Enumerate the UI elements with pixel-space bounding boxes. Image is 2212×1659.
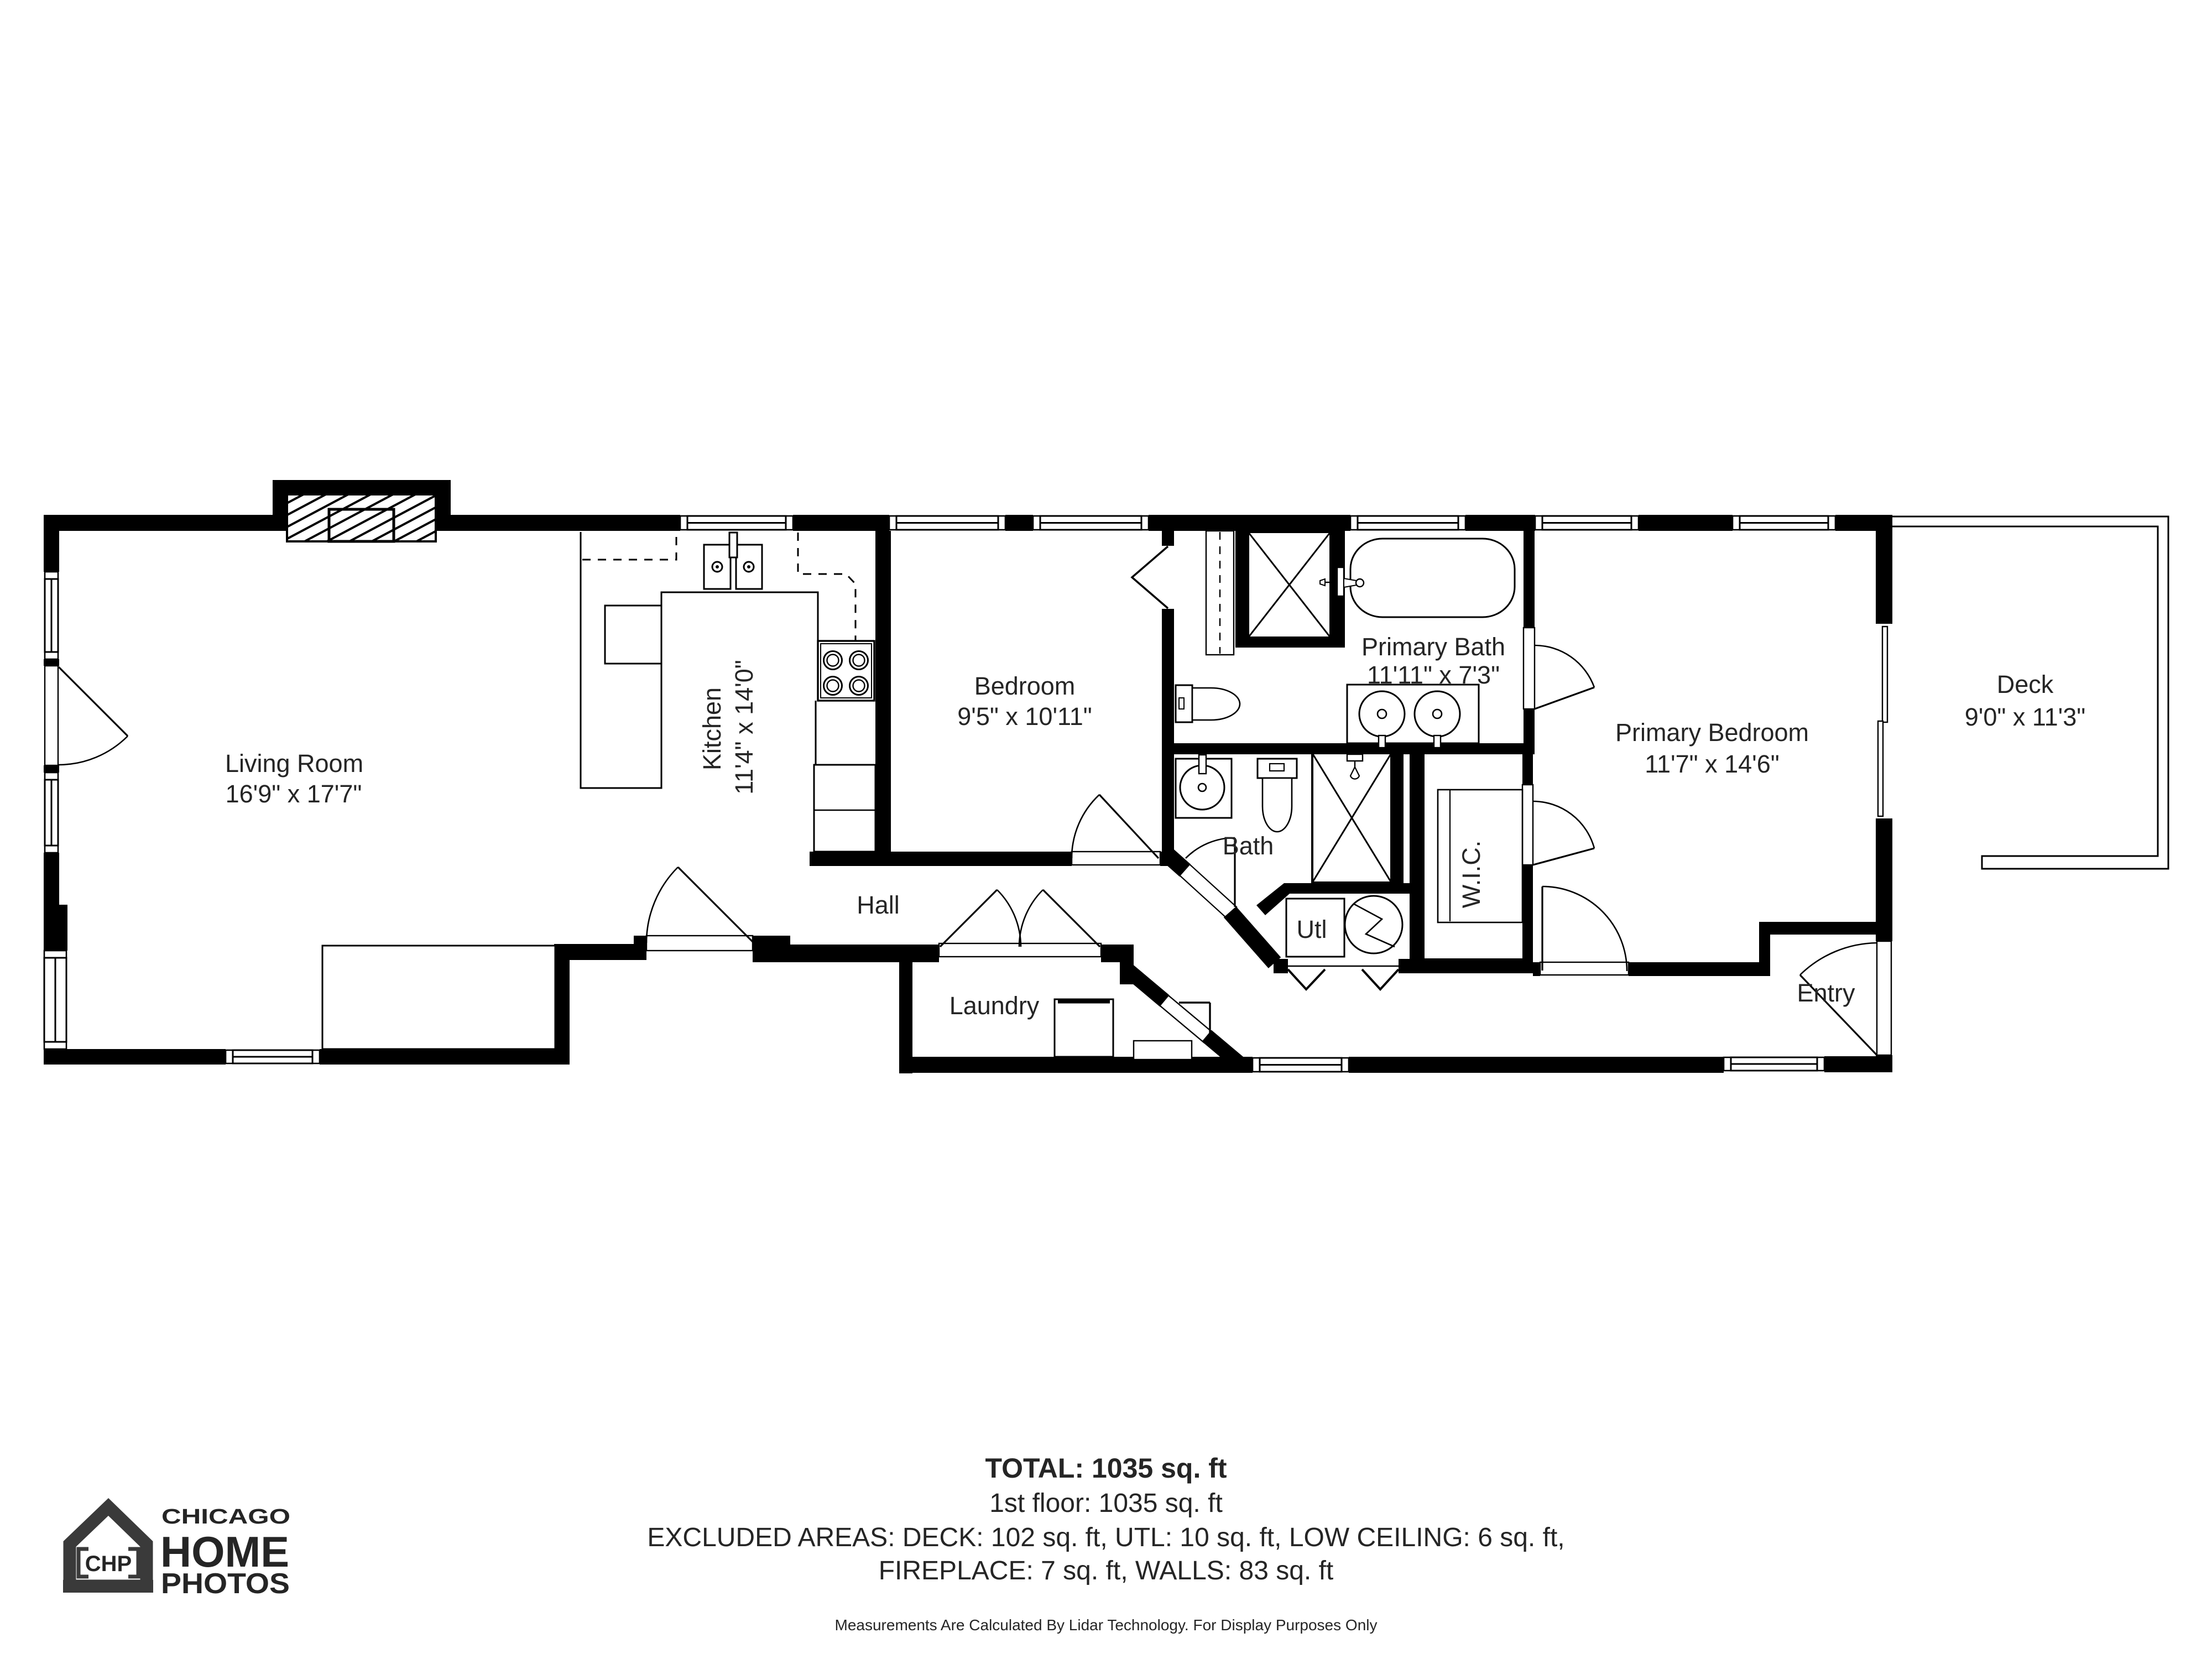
svg-text:PHOTOS: PHOTOS — [161, 1568, 290, 1600]
svg-text:Utl: Utl — [1297, 915, 1327, 943]
svg-text:11'11" x 7'3": 11'11" x 7'3" — [1367, 661, 1500, 689]
svg-text:Bedroom: Bedroom — [974, 672, 1076, 700]
svg-text:Bath: Bath — [1223, 832, 1274, 860]
svg-text:EXCLUDED AREAS: DECK: 102 sq.: EXCLUDED AREAS: DECK: 102 sq. ft, UTL: 1… — [647, 1523, 1564, 1552]
svg-text:Kitchen: Kitchen — [698, 687, 726, 770]
svg-text:Hall: Hall — [857, 891, 900, 919]
svg-text:9'5" x 10'11": 9'5" x 10'11" — [957, 702, 1092, 731]
svg-text:9'0" x 11'3": 9'0" x 11'3" — [1965, 703, 2085, 731]
svg-text:W.I.C.: W.I.C. — [1457, 841, 1485, 909]
svg-text:Primary Bedroom: Primary Bedroom — [1615, 718, 1809, 747]
svg-text:1st floor: 1035 sq. ft: 1st floor: 1035 sq. ft — [989, 1489, 1223, 1518]
svg-text:11'4" x 14'0": 11'4" x 14'0" — [730, 660, 758, 794]
svg-text:Living Room: Living Room — [225, 749, 363, 778]
svg-text:CHP: CHP — [85, 1552, 132, 1576]
svg-text:16'9" x 17'7": 16'9" x 17'7" — [226, 780, 362, 808]
svg-text:FIREPLACE: 7 sq. ft, WALLS: 83: FIREPLACE: 7 sq. ft, WALLS: 83 sq. ft — [879, 1556, 1334, 1585]
svg-text:Laundry: Laundry — [950, 992, 1040, 1020]
svg-text:TOTAL: 1035 sq. ft: TOTAL: 1035 sq. ft — [985, 1453, 1227, 1484]
svg-text:Measurements Are Calculated By: Measurements Are Calculated By Lidar Tec… — [835, 1616, 1378, 1634]
svg-text:Primary Bath: Primary Bath — [1361, 633, 1505, 661]
svg-text:CHICAGO: CHICAGO — [161, 1505, 290, 1528]
svg-text:Entry: Entry — [1797, 979, 1855, 1007]
svg-text:Deck: Deck — [1997, 670, 2054, 698]
svg-text:11'7" x 14'6": 11'7" x 14'6" — [1645, 750, 1779, 778]
